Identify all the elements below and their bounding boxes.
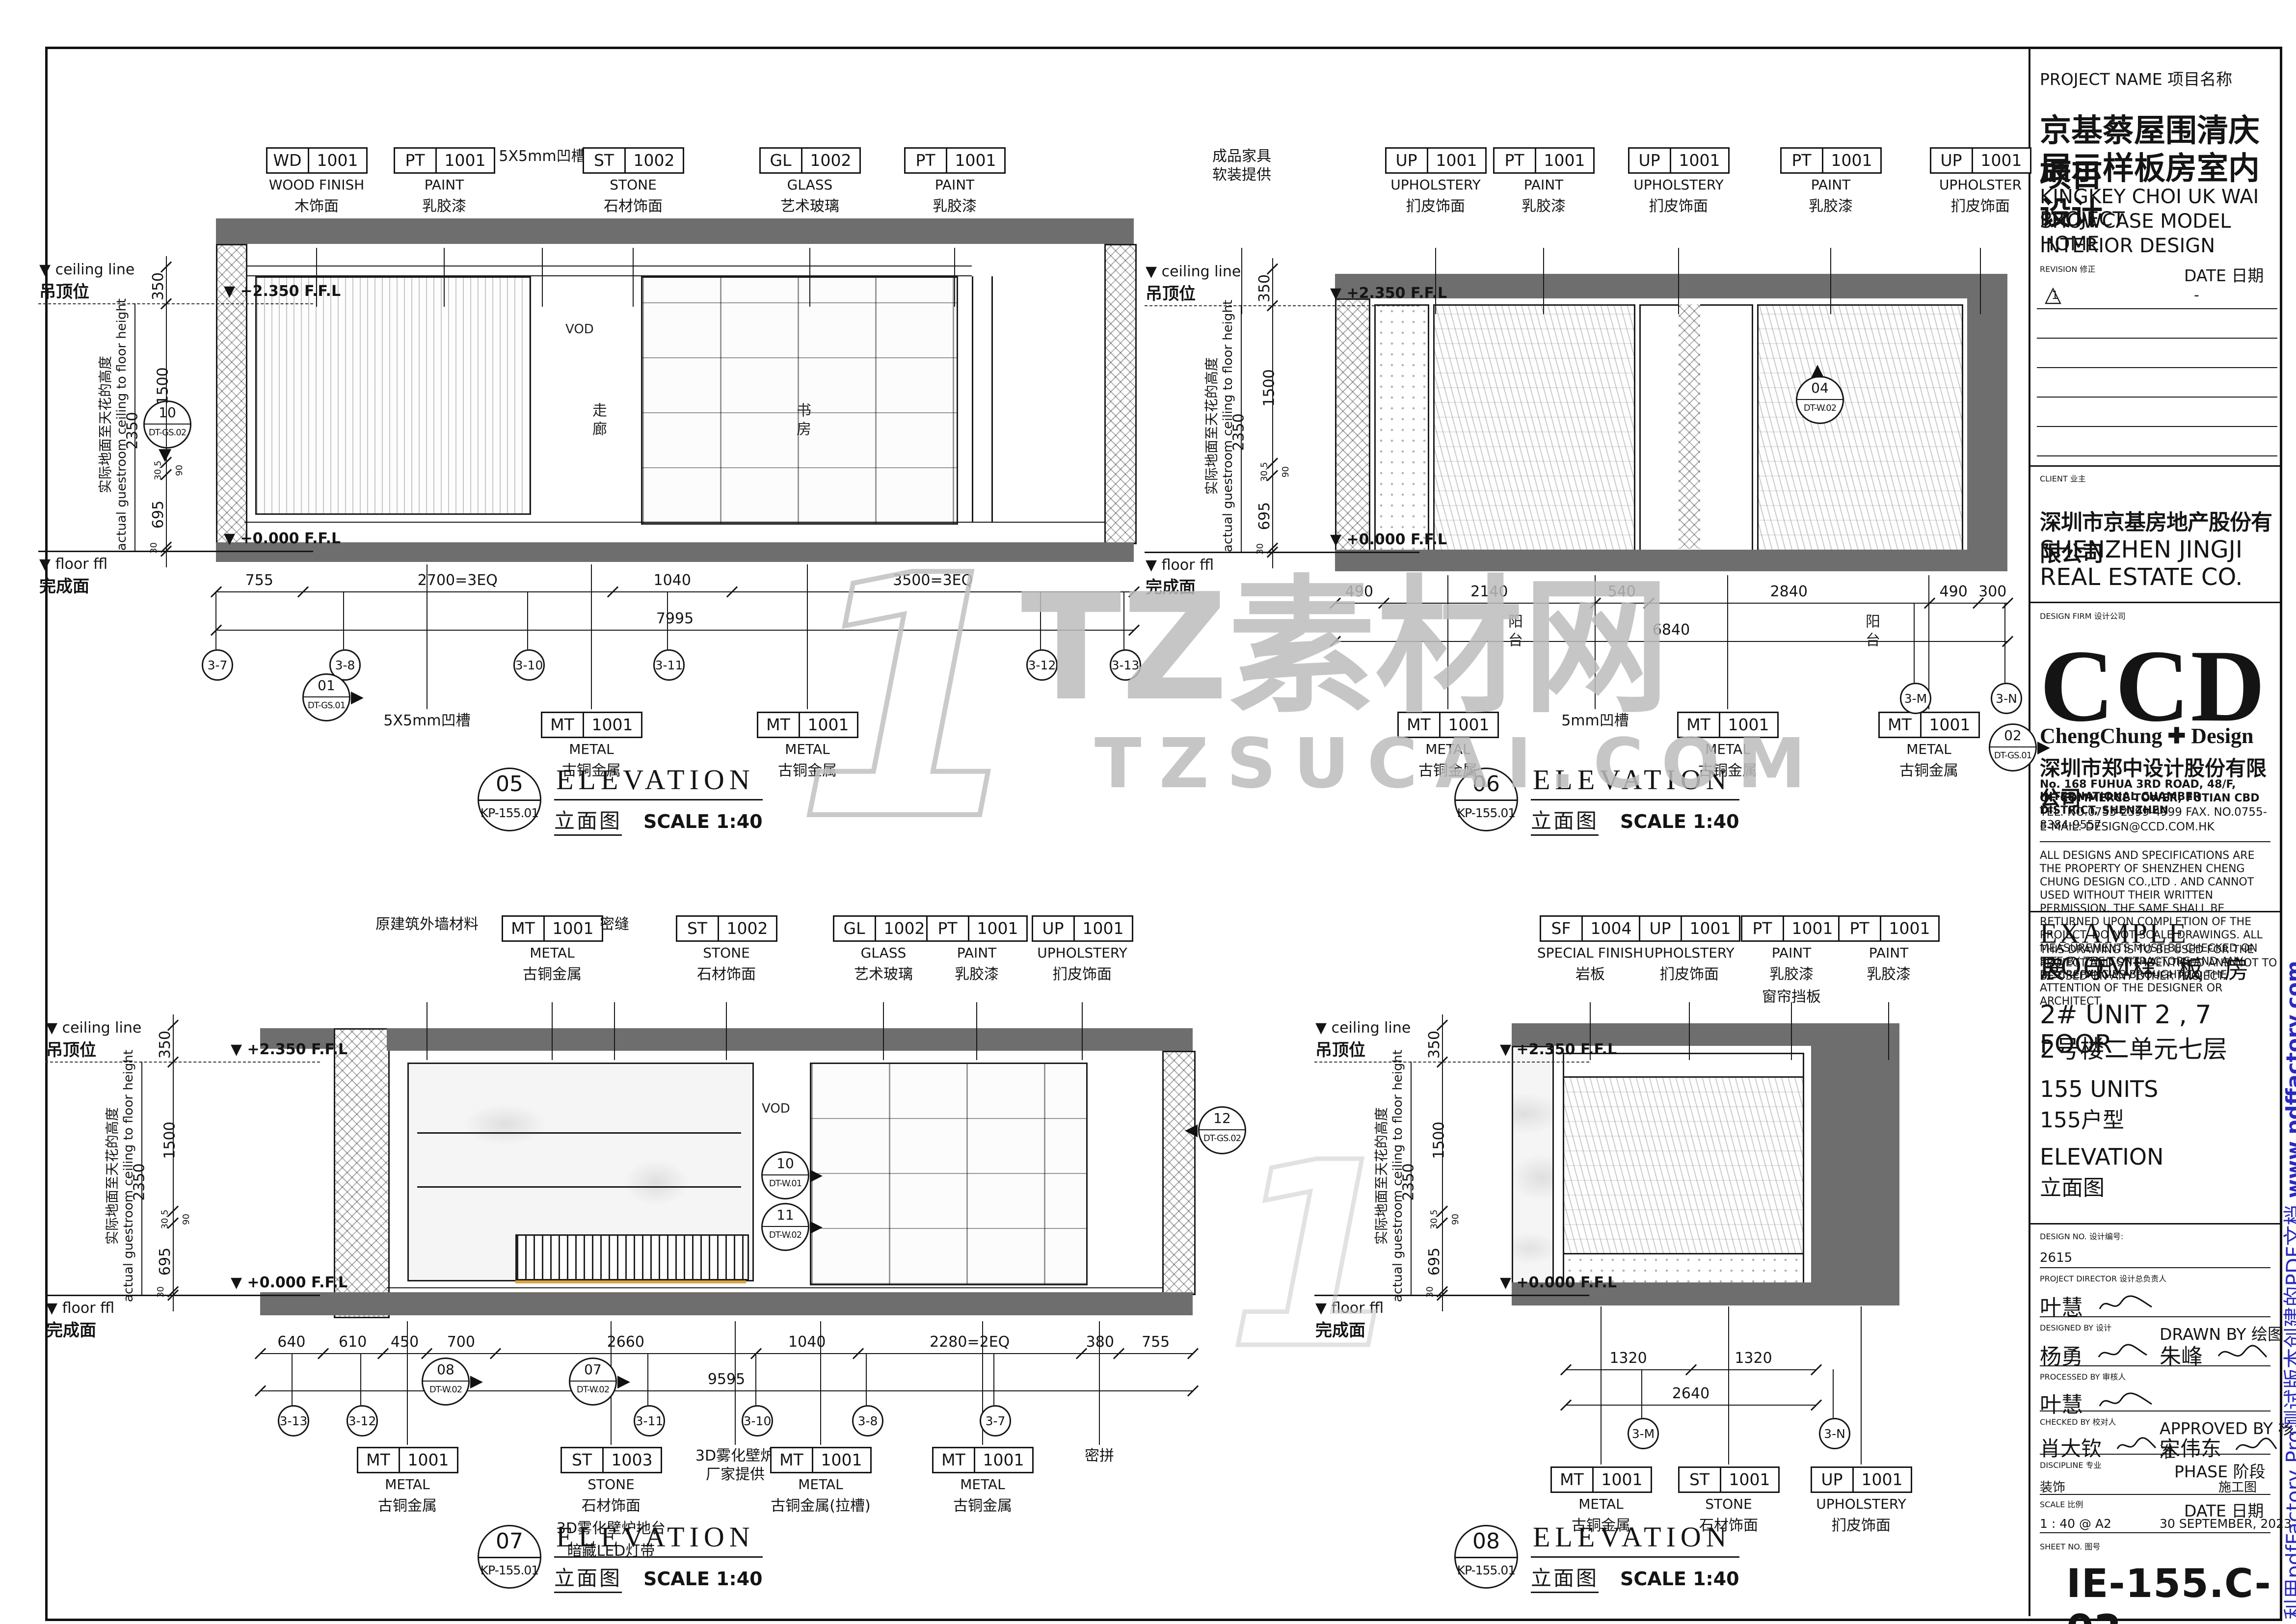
dimension-value-vertical: 350 xyxy=(1256,274,1273,302)
units-zh: 155户型 xyxy=(2040,1102,2277,1134)
level-bottom: ▼ +0.000 F.F.L xyxy=(231,1274,347,1291)
detail-marker: 01DT-GS.01▶ xyxy=(302,673,350,721)
material-tag: MT1001METAL古铜金属(拉槽) xyxy=(747,1447,894,1515)
tag-cell: 1002 xyxy=(626,149,683,172)
tag-cell: ST xyxy=(562,1448,604,1472)
watermark: 1 xyxy=(775,540,1050,856)
height-note-zh: 实际地面至天花的高度 xyxy=(102,1024,121,1328)
approved-by-name: 宋伟东 xyxy=(2160,1432,2278,1462)
tag-cell: PT xyxy=(1742,917,1784,940)
dimension-value-vertical: 30.5 xyxy=(160,1210,170,1229)
watermark-fragment: 1 xyxy=(1217,1099,1423,1376)
detail-marker: 10DT-W.01▶ xyxy=(761,1151,809,1199)
date-value: 30 SEPTEMBER, 2023 xyxy=(2160,1517,2292,1531)
grid-bubble: 3-M xyxy=(1628,1418,1659,1449)
leader-line xyxy=(542,248,543,307)
elevation-title: 07KP-155.01ELEVATION立面图SCALE 1:40 xyxy=(478,1520,763,1593)
leader-line xyxy=(1830,248,1831,314)
height-note-zh: 实际地面至天花的高度 xyxy=(1201,274,1221,578)
marker-arrow-icon: ▶ xyxy=(810,1218,823,1235)
sheet-no-label: SHEET NO. 图号 xyxy=(2040,1540,2277,1552)
elevation-number: 08 xyxy=(1456,1526,1517,1558)
tag-cell: ST xyxy=(584,149,626,172)
tag-label: UPHOLSTER xyxy=(1907,177,2054,193)
signature xyxy=(2096,1342,2150,1364)
detail-marker-text: 11 xyxy=(763,1204,808,1227)
revision-row-line xyxy=(2037,397,2277,398)
elevation-number: 05 xyxy=(479,769,540,801)
tag-cell: 1001 xyxy=(1823,149,1880,172)
pdf-factory-note: 利用pdfFactory Pro测试版本创建的PDF文档 www.pdffact… xyxy=(2277,221,2296,1620)
revision-row-line xyxy=(2037,367,2277,368)
material-tag-box: WD1001 xyxy=(266,147,368,174)
elevation-title-label: ELEVATION xyxy=(554,1520,763,1558)
dimension-value-vertical: 695 xyxy=(1256,502,1273,530)
leader-line xyxy=(1082,1002,1083,1060)
elevation-ref: KP-155.01 xyxy=(479,1558,540,1583)
row-line xyxy=(2040,1411,2270,1411)
tag-cell: 1001 xyxy=(1536,149,1593,172)
elevation-title-label: SCALE 1:40 xyxy=(643,811,763,832)
leader-line xyxy=(614,1002,615,1060)
tag-label: 石材饰面 xyxy=(653,962,800,984)
material-tag-box: MT1001 xyxy=(932,1447,1034,1473)
drawing-sheet: WD1001WOOD FINISH木饰面PT1001PAINT乳胶漆5X5mm凹… xyxy=(0,0,2296,1624)
area-title-zh: 展 示 样 板 房 xyxy=(2040,950,2277,985)
material-tag: PT1001PAINT乳胶漆 xyxy=(1470,147,1617,215)
tag-label: WOOD FINISH xyxy=(243,177,390,193)
tag-cell: 1001 xyxy=(1973,149,2030,172)
dimension-value: 2700=3EQ xyxy=(418,572,498,589)
tag-cell: 1001 xyxy=(1721,1468,1778,1491)
dimension-value: 1320 xyxy=(1735,1350,1772,1367)
material-tag: PT1001PAINT乳胶漆 xyxy=(1815,915,1962,984)
row-line xyxy=(2040,1365,2270,1366)
grid-line xyxy=(292,1353,293,1405)
tag-cell: SF xyxy=(1541,917,1583,940)
tag-label: PAINT xyxy=(371,177,518,193)
tag-label: 古铜金属 xyxy=(479,962,626,984)
leader-line xyxy=(883,1002,884,1060)
tag-label: STONE xyxy=(653,945,800,961)
dimension-total-value: 9595 xyxy=(708,1371,745,1388)
dimension-total-line xyxy=(1566,1405,1816,1406)
leader-line xyxy=(1435,248,1436,314)
tag-cell: 1001 xyxy=(1922,713,1978,737)
dimension-value-vertical: 90 xyxy=(174,465,185,476)
row-line xyxy=(2040,1454,2270,1455)
svg-text:1: 1 xyxy=(795,540,1027,854)
tag-cell: ST xyxy=(677,917,719,940)
tag-cell: GL xyxy=(761,149,802,172)
material-tag: GL1002GLASS艺术玻璃 xyxy=(736,147,883,215)
detail-marker-text: 10 xyxy=(763,1153,808,1175)
tag-cell: UP xyxy=(1629,149,1671,172)
tag-cell: 1001 xyxy=(813,1448,870,1472)
tag-label: METAL xyxy=(1855,741,2002,757)
grid-line xyxy=(2004,603,2005,683)
elevation-title-label: ELEVATION xyxy=(554,763,763,800)
tag-label: STONE xyxy=(560,177,707,193)
dimension-value-vertical: 695 xyxy=(157,1247,174,1275)
level-top: ▼ +2.350 F.F.L xyxy=(1500,1041,1617,1058)
ceiling-line xyxy=(45,1062,320,1063)
height-note: 实际地面至天花的高度actual guestroom ceiling to fl… xyxy=(102,1024,136,1328)
tag-label: 乳胶漆 xyxy=(1757,194,1904,215)
processed-by-label: PROCESSED BY 审核人 xyxy=(2040,1370,2277,1382)
leader-line xyxy=(1861,1306,1862,1464)
revision-row-line xyxy=(2037,308,2277,309)
revision-date-label: DATE 日期 xyxy=(2184,263,2264,286)
dwg-type-en: ELEVATION xyxy=(2040,1144,2277,1170)
tag-label: PAINT xyxy=(1815,945,1962,961)
detail-marker: 02DT-GS.01▶ xyxy=(1989,723,2037,772)
material-tag: ST1002STONE石材饰面 xyxy=(653,915,800,984)
dimension-value: 380 xyxy=(1086,1333,1114,1351)
elevation-title-text: ELEVATION立面图SCALE 1:40 xyxy=(1531,1520,1739,1593)
leader-line xyxy=(427,1002,427,1060)
detail-marker: 07DT-W.02▶ xyxy=(569,1358,617,1406)
revision-row-line xyxy=(2037,426,2277,427)
dimension-value-vertical: 350 xyxy=(150,272,167,300)
revision-date-value: - xyxy=(2194,287,2199,304)
marker-arrow-icon: ▶ xyxy=(617,1373,630,1389)
tag-cell: 1001 xyxy=(1881,917,1938,940)
grid-line xyxy=(527,591,528,649)
detail-marker-text: 04 xyxy=(1797,377,1842,400)
material-tag-box: MT1001 xyxy=(1878,712,1980,738)
grid-line xyxy=(647,1353,648,1405)
leader-line xyxy=(976,1002,977,1060)
tag-label: METAL xyxy=(909,1476,1056,1492)
project-name-label: PROJECT NAME 项目名称 xyxy=(2040,66,2277,90)
material-tag: MT1001METAL古铜金属 xyxy=(334,1447,481,1515)
height-note-en: actual guestroom ceiling to floor height xyxy=(1221,274,1235,578)
row-line xyxy=(2040,1532,2270,1533)
section-line xyxy=(2029,1223,2280,1225)
dimension-value-vertical: 1500 xyxy=(161,1121,179,1159)
leader-line xyxy=(1727,575,1728,709)
grid-bubble: 3-7 xyxy=(980,1405,1011,1437)
tag-cell: PT xyxy=(1495,149,1536,172)
elevation-title-label: SCALE 1:40 xyxy=(1620,1568,1739,1590)
tag-cell: 1001 xyxy=(947,149,1004,172)
leader-line xyxy=(1791,1002,1792,1060)
elevation-number-bubble: 08KP-155.01 xyxy=(1454,1525,1518,1589)
dimension-value-vertical: 90 xyxy=(181,1214,191,1225)
grid-line xyxy=(1641,1369,1642,1418)
design-no-label: DESIGN NO. 设计编号: xyxy=(2040,1230,2277,1242)
floor-line xyxy=(38,551,313,552)
grid-line xyxy=(1833,1369,1834,1418)
tag-label: 乳胶漆 xyxy=(881,194,1028,215)
material-tag: UP1001UPHOLSTER扪皮饰面 xyxy=(1907,147,2054,215)
dimension-value-vertical: 350 xyxy=(157,1031,174,1059)
tag-cell: PT xyxy=(906,149,947,172)
row-line xyxy=(2040,1316,2270,1317)
annotation-layer: WD1001WOOD FINISH木饰面PT1001PAINT乳胶漆5X5mm凹… xyxy=(0,0,2296,1624)
material-tag: UP1001UPHOLSTERY扪皮饰面 xyxy=(1009,915,1156,984)
elevation-title-label: 立面图 xyxy=(1531,804,1599,836)
annotation-text: VOD xyxy=(762,1101,790,1116)
height-note: 实际地面至天花的高度actual guestroom ceiling to fl… xyxy=(95,272,129,577)
tag-label: METAL xyxy=(518,741,665,757)
name-text: 宋伟东 xyxy=(2160,1437,2221,1461)
material-tag-box: ST1002 xyxy=(583,147,684,174)
unit-zh: 2号楼二单元七层 xyxy=(2040,1030,2277,1065)
ceiling-line xyxy=(38,303,313,304)
grid-line xyxy=(755,1353,756,1405)
elevation-title-label: 立面图 xyxy=(554,804,622,836)
dimension-value: 490 xyxy=(1940,583,1968,600)
tag-label: 古铜金属 xyxy=(909,1493,1056,1515)
material-tag-box: UP1001 xyxy=(1628,147,1730,174)
section-line xyxy=(2029,602,2280,603)
leader-line xyxy=(1888,1002,1889,1060)
tag-label: 木饰面 xyxy=(243,194,390,215)
dimension-value-vertical: 30.5 xyxy=(1429,1210,1440,1229)
floor-line xyxy=(1145,552,1419,553)
dimension-value: 2660 xyxy=(607,1333,644,1351)
leader-line xyxy=(809,248,810,307)
tag-label: 扪皮饰面 xyxy=(1788,1513,1935,1535)
tag-label: 艺术玻璃 xyxy=(736,194,883,215)
leader-line xyxy=(1980,248,1981,314)
marker-arrow-icon: ▶ xyxy=(470,1373,483,1389)
tag-label: STONE xyxy=(1655,1496,1802,1512)
tag-label: 古铜金属 xyxy=(1855,758,2002,780)
design-firm-label: DESIGN FIRM 设计公司 xyxy=(2040,610,2277,621)
material-tag: PT1001PAINT乳胶漆 xyxy=(1757,147,1904,215)
dimension-value-vertical: 695 xyxy=(1426,1247,1443,1275)
note-tag: 成品家具软装提供 xyxy=(1168,147,1315,185)
firm-divider xyxy=(2040,841,2270,842)
material-tag-box: PT1001 xyxy=(1493,147,1595,174)
signature xyxy=(2114,1435,2159,1456)
material-tag-box: PT1001 xyxy=(904,147,1006,174)
grid-bubble: 3-7 xyxy=(202,649,233,681)
grid-bubble: 3-12 xyxy=(347,1405,378,1437)
material-tag-box: MT1001 xyxy=(770,1447,872,1473)
elevation-title-text: ELEVATION立面图SCALE 1:40 xyxy=(554,1520,763,1593)
marker-arrow-icon: ▶ xyxy=(351,689,364,705)
tag-cell: MT xyxy=(542,713,584,737)
height-note-en: actual guestroom ceiling to floor height xyxy=(121,1024,136,1328)
material-tag: UP1001UPHOLSTERY扪皮饰面 xyxy=(1788,1466,1935,1535)
processed-by-name: 叶慧 xyxy=(2040,1387,2277,1418)
level-bottom: ▼ +0.000 F.F.L xyxy=(1500,1274,1617,1291)
client-en1: SHENZHEN JINGJI xyxy=(2040,536,2277,563)
material-tag: PT1001PAINT乳胶漆 xyxy=(881,147,1028,215)
tag-cell: 1001 xyxy=(400,1448,457,1472)
grid-line xyxy=(343,591,344,649)
tag-cell: PT xyxy=(395,149,437,172)
row-line xyxy=(2040,1267,2270,1268)
sheet-no-value: IE-155.C-02 xyxy=(2066,1561,2296,1624)
elevation-title-label: 立面图 xyxy=(1531,1562,1599,1593)
elevation-title: 08KP-155.01ELEVATION立面图SCALE 1:40 xyxy=(1454,1520,1739,1593)
dimension-value: 700 xyxy=(447,1333,475,1351)
elevation-number-bubble: 05KP-155.01 xyxy=(478,768,541,831)
ceiling-line xyxy=(1314,1062,1589,1063)
tag-label: 乳胶漆 xyxy=(1470,194,1617,215)
watermark-text-zh: TZ素材网 xyxy=(1021,574,1670,721)
grid-line xyxy=(667,591,668,649)
watermark-logo-icon: 1 xyxy=(775,540,1050,854)
tag-cell: UP xyxy=(1387,149,1428,172)
tag-cell: PT xyxy=(928,917,969,940)
dimension-value: 1040 xyxy=(654,572,691,589)
grid-bubble: 3-10 xyxy=(742,1405,773,1437)
dimension-value-vertical: 30 xyxy=(149,542,159,554)
dimension-value: 2280=2EQ xyxy=(930,1333,1010,1351)
tag-cell: 1003 xyxy=(604,1448,661,1472)
detail-marker-text: 01 xyxy=(304,675,349,697)
elevation-title-label: 立面图 xyxy=(554,1562,622,1593)
floor-line xyxy=(45,1295,320,1296)
dimension-line xyxy=(260,1353,1193,1354)
tag-label: METAL xyxy=(747,1476,894,1492)
material-tag-box: UP1001 xyxy=(1032,915,1133,942)
grid-bubble: 3-N xyxy=(1819,1418,1850,1449)
tag-label: 古铜金属(拉槽) xyxy=(747,1493,894,1515)
revision-row-line xyxy=(2037,455,2277,456)
elevation-ref: KP-155.01 xyxy=(1456,801,1517,825)
leader-line xyxy=(1543,248,1544,314)
firm-logo-sub: ChengChung ✚ Design xyxy=(2040,723,2277,748)
detail-marker-text: 02 xyxy=(1990,725,2035,747)
dimension-value-vertical: 695 xyxy=(150,501,167,529)
dimension-value-vertical: 30.5 xyxy=(153,461,163,480)
dimension-value-vertical: 90 xyxy=(1450,1214,1461,1225)
tag-cell: MT xyxy=(358,1448,400,1472)
material-tag-box: GL1002 xyxy=(759,147,861,174)
dimension-value: 755 xyxy=(1142,1333,1170,1351)
tag-label: 乳胶漆 xyxy=(1815,962,1962,984)
client-label: CLIENT 业主 xyxy=(2040,472,2277,484)
tag-cell: MT xyxy=(772,1448,813,1472)
leader-line xyxy=(552,1002,553,1060)
elevation-ref: KP-155.01 xyxy=(479,801,540,825)
dwg-type-zh: 立面图 xyxy=(2040,1170,2277,1201)
tag-cell: GL xyxy=(834,917,876,940)
tag-cell: 1001 xyxy=(1594,1468,1651,1491)
detail-marker-text: 07 xyxy=(570,1359,615,1382)
tag-cell: MT xyxy=(934,1448,975,1472)
elevation-title-label: SCALE 1:40 xyxy=(1620,811,1739,832)
leader-line xyxy=(591,564,592,709)
tag-cell: 1002 xyxy=(802,149,859,172)
dimension-value: 640 xyxy=(277,1333,305,1351)
level-bottom: ▼ +0.000 F.F.L xyxy=(224,530,341,547)
detail-marker-text: DT-W.02 xyxy=(570,1382,615,1398)
grid-bubble: 3-13 xyxy=(278,1405,309,1437)
tag-label: 乳胶漆 xyxy=(371,194,518,215)
tag-cell: UP xyxy=(1812,1468,1854,1491)
name-text: 叶慧 xyxy=(2040,1392,2083,1417)
leader-line xyxy=(1601,1306,1602,1464)
project-director-label: PROJECT DIRECTOR 设计总负责人 xyxy=(2040,1272,2277,1284)
elevation-title-label: SCALE 1:40 xyxy=(643,1568,763,1590)
tag-cell: WD xyxy=(267,149,309,172)
tag-cell: 1001 xyxy=(1854,1468,1911,1491)
dimension-value: 755 xyxy=(245,572,273,589)
firm-email: E-MAIL: DESIGN@CCD.COM.HK xyxy=(2040,821,2277,833)
detail-marker: 10DT-GS.02▼ xyxy=(143,400,191,449)
elevation-title-label: ELEVATION xyxy=(1531,1520,1739,1558)
tag-label: UPHOLSTERY xyxy=(1605,177,1752,193)
tag-cell: UP xyxy=(1640,917,1682,940)
note-tag: 5X5mm凹槽 xyxy=(353,712,501,730)
dimension-value-vertical: 1500 xyxy=(155,368,172,405)
material-tag-box: MT1001 xyxy=(1550,1466,1652,1493)
dimension-value-vertical: 1500 xyxy=(1261,369,1278,406)
leader-line xyxy=(954,248,955,307)
grid-bubble: 3-10 xyxy=(513,649,545,681)
tag-cell: UP xyxy=(1033,917,1075,940)
tag-label: 扪皮饰面 xyxy=(1605,194,1752,215)
material-tag-box: ST1002 xyxy=(676,915,777,942)
tag-extra-label: 窗帘挡板 xyxy=(1718,985,1865,1006)
dimension-value: 610 xyxy=(339,1333,367,1351)
grid-line xyxy=(360,1353,361,1405)
name-text: 肖大钦 xyxy=(2040,1437,2102,1461)
material-tag-box: MT1001 xyxy=(357,1447,458,1473)
ceiling-line xyxy=(1145,305,1419,306)
tag-cell: 1001 xyxy=(309,149,366,172)
material-tag-box: PT1001 xyxy=(1838,915,1940,942)
tag-cell: MT xyxy=(503,917,545,940)
height-note-zh: 实际地面至天花的高度 xyxy=(95,272,114,577)
room-label: 走廊 xyxy=(587,402,609,440)
material-tag: UP1001UPHOLSTERY扪皮饰面 xyxy=(1605,147,1752,215)
leader-line xyxy=(1728,1306,1729,1464)
tag-cell: MT xyxy=(1552,1468,1594,1491)
material-tag: MT1001METAL古铜金属 xyxy=(1855,712,2002,780)
level-bottom: ▼ +0.000 F.F.L xyxy=(1330,531,1447,548)
signature xyxy=(2096,1293,2155,1315)
tag-cell: PT xyxy=(1782,149,1823,172)
dimension-value-vertical: 30.5 xyxy=(1259,462,1270,481)
material-tag: ST1002STONE石材饰面 xyxy=(560,147,707,215)
tag-cell: 1001 xyxy=(975,1448,1032,1472)
marker-arrow-icon: ◀ xyxy=(1185,1121,1198,1138)
section-line xyxy=(2029,465,2280,467)
row-line xyxy=(2040,1494,2270,1495)
material-tag-box: UP1001 xyxy=(1811,1466,1912,1493)
detail-marker: 04DT-W.02▲ xyxy=(1796,376,1844,424)
room-label: 阳台 xyxy=(1860,613,1882,651)
detail-marker-text: DT-GS.01 xyxy=(1990,747,2035,764)
leader-line xyxy=(444,248,445,307)
watermark-text-url: TZSUCAI.COM xyxy=(1095,724,1823,804)
section-line xyxy=(2029,911,2280,912)
detail-marker-text: DT-GS.02 xyxy=(145,425,190,441)
dimension-total-value: 7995 xyxy=(656,610,694,627)
tag-cell: PT xyxy=(1840,917,1881,940)
tag-label: 石材饰面 xyxy=(560,194,707,215)
tag-label: 扪皮饰面 xyxy=(1907,194,2054,215)
tag-cell: 1001 xyxy=(1075,917,1132,940)
dimension-value-vertical: 90 xyxy=(1281,466,1291,478)
tag-label: PAINT xyxy=(1470,177,1617,193)
pdf-note-url: www.pdffactory.com xyxy=(2282,961,2296,1198)
units-en: 155 UNITS xyxy=(2040,1076,2277,1102)
tag-label: UPHOLSTERY xyxy=(1788,1496,1935,1512)
level-top: ▼ +2.350 F.F.L xyxy=(231,1041,347,1058)
dimension-value-vertical: 350 xyxy=(1426,1031,1443,1059)
grid-line xyxy=(1914,603,1915,683)
